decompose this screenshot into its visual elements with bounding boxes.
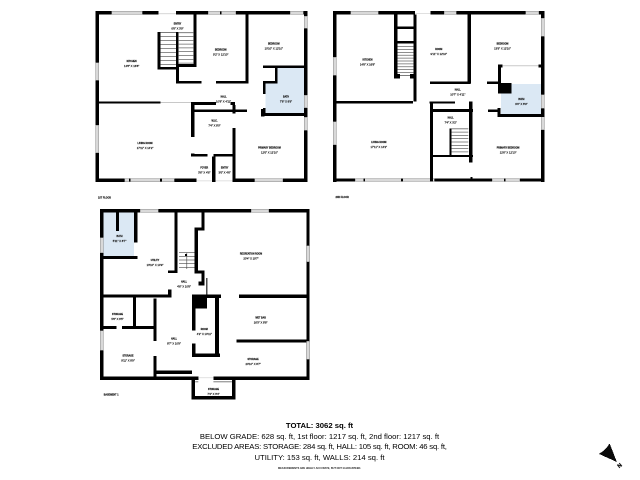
svg-text:10'7" X 4'11": 10'7" X 4'11" xyxy=(450,92,465,96)
svg-text:RECREATION ROOM: RECREATION ROOM xyxy=(240,252,263,256)
svg-text:HALL: HALL xyxy=(448,116,454,120)
svg-text:HALL: HALL xyxy=(221,95,227,99)
svg-text:3'6" X 4'6": 3'6" X 4'6" xyxy=(218,171,230,175)
svg-text:12'6" X 12'10": 12'6" X 12'10" xyxy=(500,150,517,154)
svg-text:HALL: HALL xyxy=(181,279,187,283)
svg-text:9'11" X 8'9": 9'11" X 8'9" xyxy=(121,359,135,363)
svg-text:13'10" X 10'9": 13'10" X 10'9" xyxy=(147,263,164,267)
svg-text:10'8" X 4'11": 10'8" X 4'11" xyxy=(216,100,231,104)
svg-text:FOYER: FOYER xyxy=(200,166,208,170)
svg-text:BATH: BATH xyxy=(518,97,525,101)
svg-text:2ND FLOOR: 2ND FLOOR xyxy=(336,195,350,199)
svg-text:STORAGE: STORAGE xyxy=(248,357,259,361)
svg-text:9'0" X 8'9": 9'0" X 8'9" xyxy=(515,102,527,106)
svg-text:20'10" X 8'7": 20'10" X 8'7" xyxy=(245,362,260,366)
svg-text:13'9" X 12'10": 13'9" X 12'10" xyxy=(494,47,511,51)
svg-text:1ST FLOOR: 1ST FLOOR xyxy=(98,195,112,199)
svg-text:14'8" X 16'8": 14'8" X 16'8" xyxy=(360,62,375,66)
svg-text:PRIMARY BEDROOM: PRIMARY BEDROOM xyxy=(258,146,281,150)
svg-text:5'8" X 6'5": 5'8" X 6'5" xyxy=(111,317,123,321)
svg-text:BEDROOM: BEDROOM xyxy=(268,41,280,45)
svg-text:7'4" X 3'2": 7'4" X 3'2" xyxy=(444,121,456,125)
svg-text:PRIMARY BEDROOM: PRIMARY BEDROOM xyxy=(497,145,520,149)
svg-text:HALL: HALL xyxy=(455,87,461,91)
svg-text:12'6" X 12'10": 12'6" X 12'10" xyxy=(261,151,278,155)
svg-text:W.I.C.: W.I.C. xyxy=(211,119,217,123)
svg-text:5'11" X 8'7": 5'11" X 8'7" xyxy=(113,239,127,243)
svg-text:BASEMENT 1: BASEMENT 1 xyxy=(104,393,119,397)
svg-text:10'10" X 12'10": 10'10" X 12'10" xyxy=(265,46,283,50)
svg-text:BATH: BATH xyxy=(116,234,123,238)
svg-text:14'8" X 16'8": 14'8" X 16'8" xyxy=(124,64,139,68)
svg-text:LIVING ROOM: LIVING ROOM xyxy=(137,141,152,145)
svg-text:STORAGE: STORAGE xyxy=(208,387,219,391)
svg-text:7'4" X 8'0": 7'4" X 8'0" xyxy=(208,124,220,128)
svg-text:17'11" X 14'2": 17'11" X 14'2" xyxy=(137,146,154,150)
svg-text:6'8" X 3'9": 6'8" X 3'9" xyxy=(171,27,183,31)
svg-text:STORAGE: STORAGE xyxy=(122,354,133,358)
svg-text:ROOM: ROOM xyxy=(201,327,208,331)
svg-text:KITCHEN: KITCHEN xyxy=(127,59,138,63)
svg-text:STORAGE: STORAGE xyxy=(112,312,123,316)
svg-text:ROOM: ROOM xyxy=(435,47,442,51)
svg-text:BATH: BATH xyxy=(283,94,290,98)
svg-text:BEDROOM: BEDROOM xyxy=(497,42,509,46)
svg-text:9'11" X 12'10": 9'11" X 12'10" xyxy=(431,52,448,56)
svg-text:WET BAR: WET BAR xyxy=(255,316,266,320)
svg-text:9'2" X 12'10": 9'2" X 12'10" xyxy=(213,52,228,56)
svg-text:BEDROOM: BEDROOM xyxy=(215,47,227,51)
svg-text:ENTRY: ENTRY xyxy=(174,22,182,26)
svg-text:4'6" X 10'8": 4'6" X 10'8" xyxy=(177,284,191,288)
svg-text:HALL: HALL xyxy=(171,336,177,340)
svg-text:8'7" X 10'9": 8'7" X 10'9" xyxy=(167,341,181,345)
svg-text:3'6" X 4'6": 3'6" X 4'6" xyxy=(198,171,210,175)
svg-text:7'8" X 8'9": 7'8" X 8'9" xyxy=(280,99,292,103)
svg-text:ENTRY: ENTRY xyxy=(221,166,229,170)
svg-text:KITCHEN: KITCHEN xyxy=(363,57,374,61)
svg-text:20'4" X 19'7": 20'4" X 19'7" xyxy=(243,257,258,261)
svg-text:7'4" X 3'4": 7'4" X 3'4" xyxy=(207,392,219,396)
svg-text:UTILITY: UTILITY xyxy=(151,258,160,262)
svg-text:4'2" X 10'11": 4'2" X 10'11" xyxy=(197,332,212,336)
svg-text:LIVING ROOM: LIVING ROOM xyxy=(371,140,386,144)
svg-text:17'11" X 14'2": 17'11" X 14'2" xyxy=(371,145,388,149)
svg-text:16'3" X 8'8": 16'3" X 8'8" xyxy=(254,321,268,325)
